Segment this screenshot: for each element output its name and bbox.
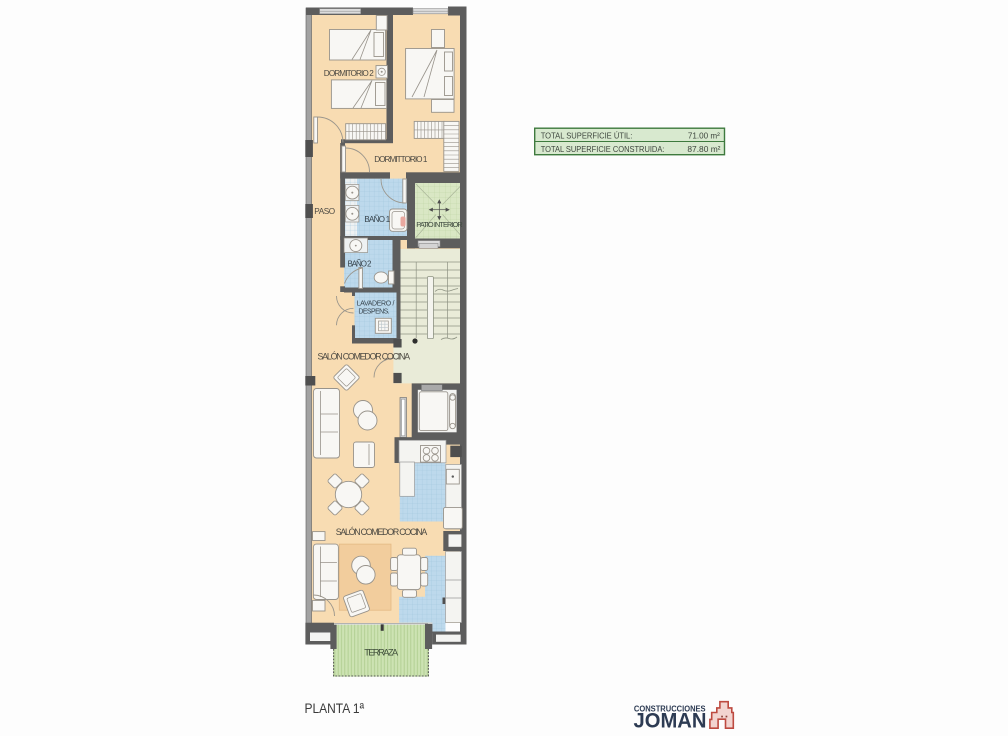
svg-text:JOMAN: JOMAN xyxy=(634,709,707,733)
svg-text:PLANTA 1ª: PLANTA 1ª xyxy=(305,701,365,717)
